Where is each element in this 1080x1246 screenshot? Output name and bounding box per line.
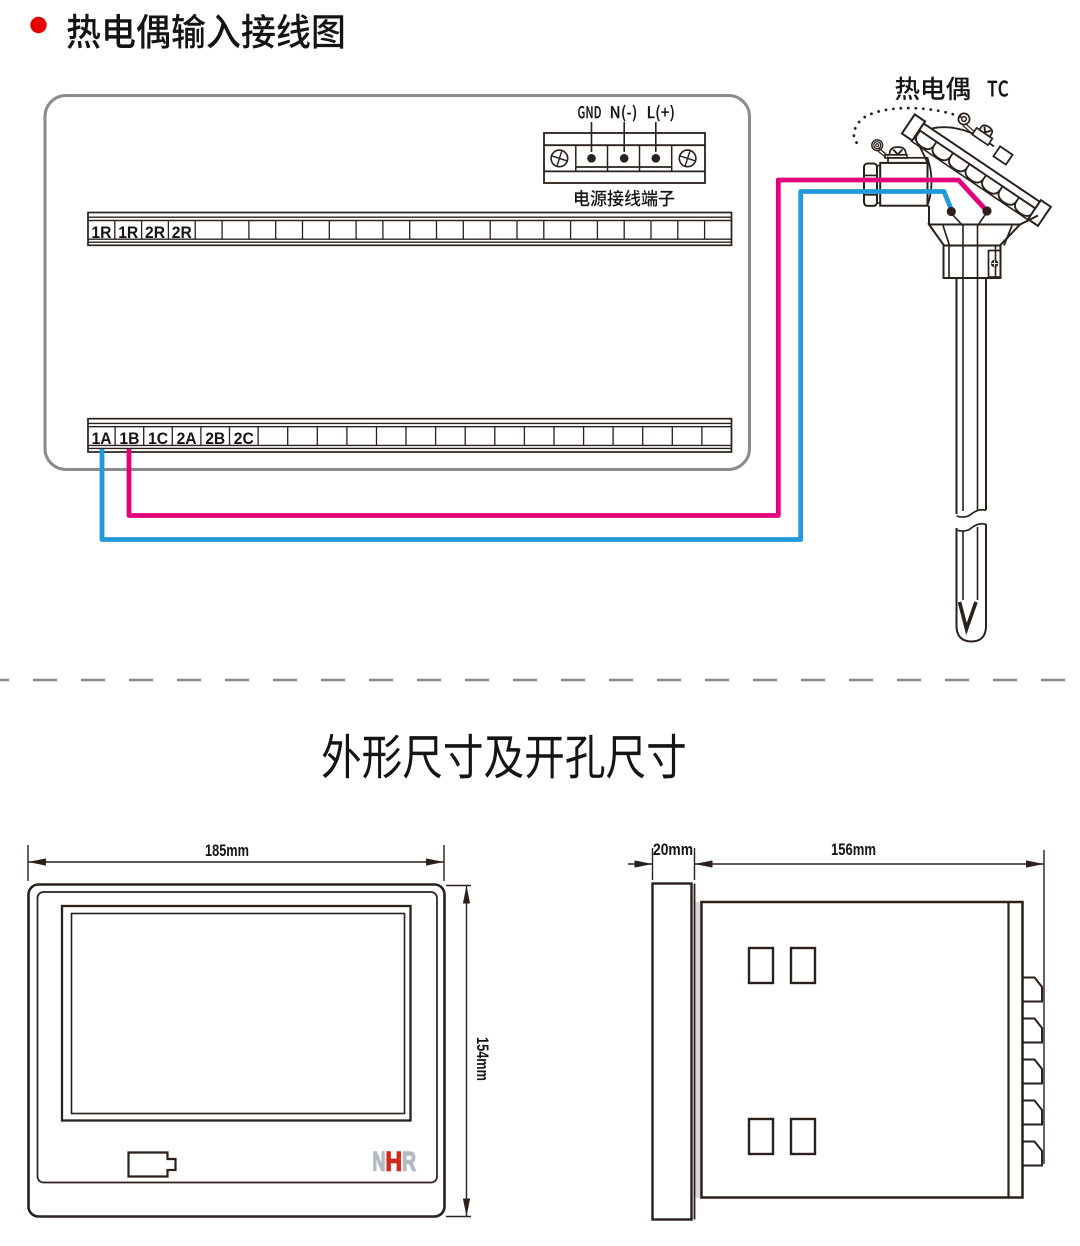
svg-text:154mm: 154mm xyxy=(473,1037,492,1081)
svg-text:H: H xyxy=(386,1147,403,1177)
svg-text:2A: 2A xyxy=(177,429,197,448)
svg-text:2R: 2R xyxy=(172,223,192,242)
svg-text:185mm: 185mm xyxy=(205,841,249,860)
svg-text:2C: 2C xyxy=(234,429,254,448)
svg-text:1C: 1C xyxy=(148,429,168,448)
svg-text:1B: 1B xyxy=(119,429,139,448)
svg-text:N: N xyxy=(373,1147,386,1177)
svg-text:R: R xyxy=(402,1147,416,1177)
svg-text:1R: 1R xyxy=(91,223,111,242)
svg-text:20mm: 20mm xyxy=(653,840,693,859)
svg-text:156mm: 156mm xyxy=(831,840,876,859)
svg-text:1A: 1A xyxy=(92,429,112,448)
svg-text:1R: 1R xyxy=(118,223,138,242)
svg-text:2B: 2B xyxy=(205,429,225,448)
svg-text:2R: 2R xyxy=(145,223,165,242)
